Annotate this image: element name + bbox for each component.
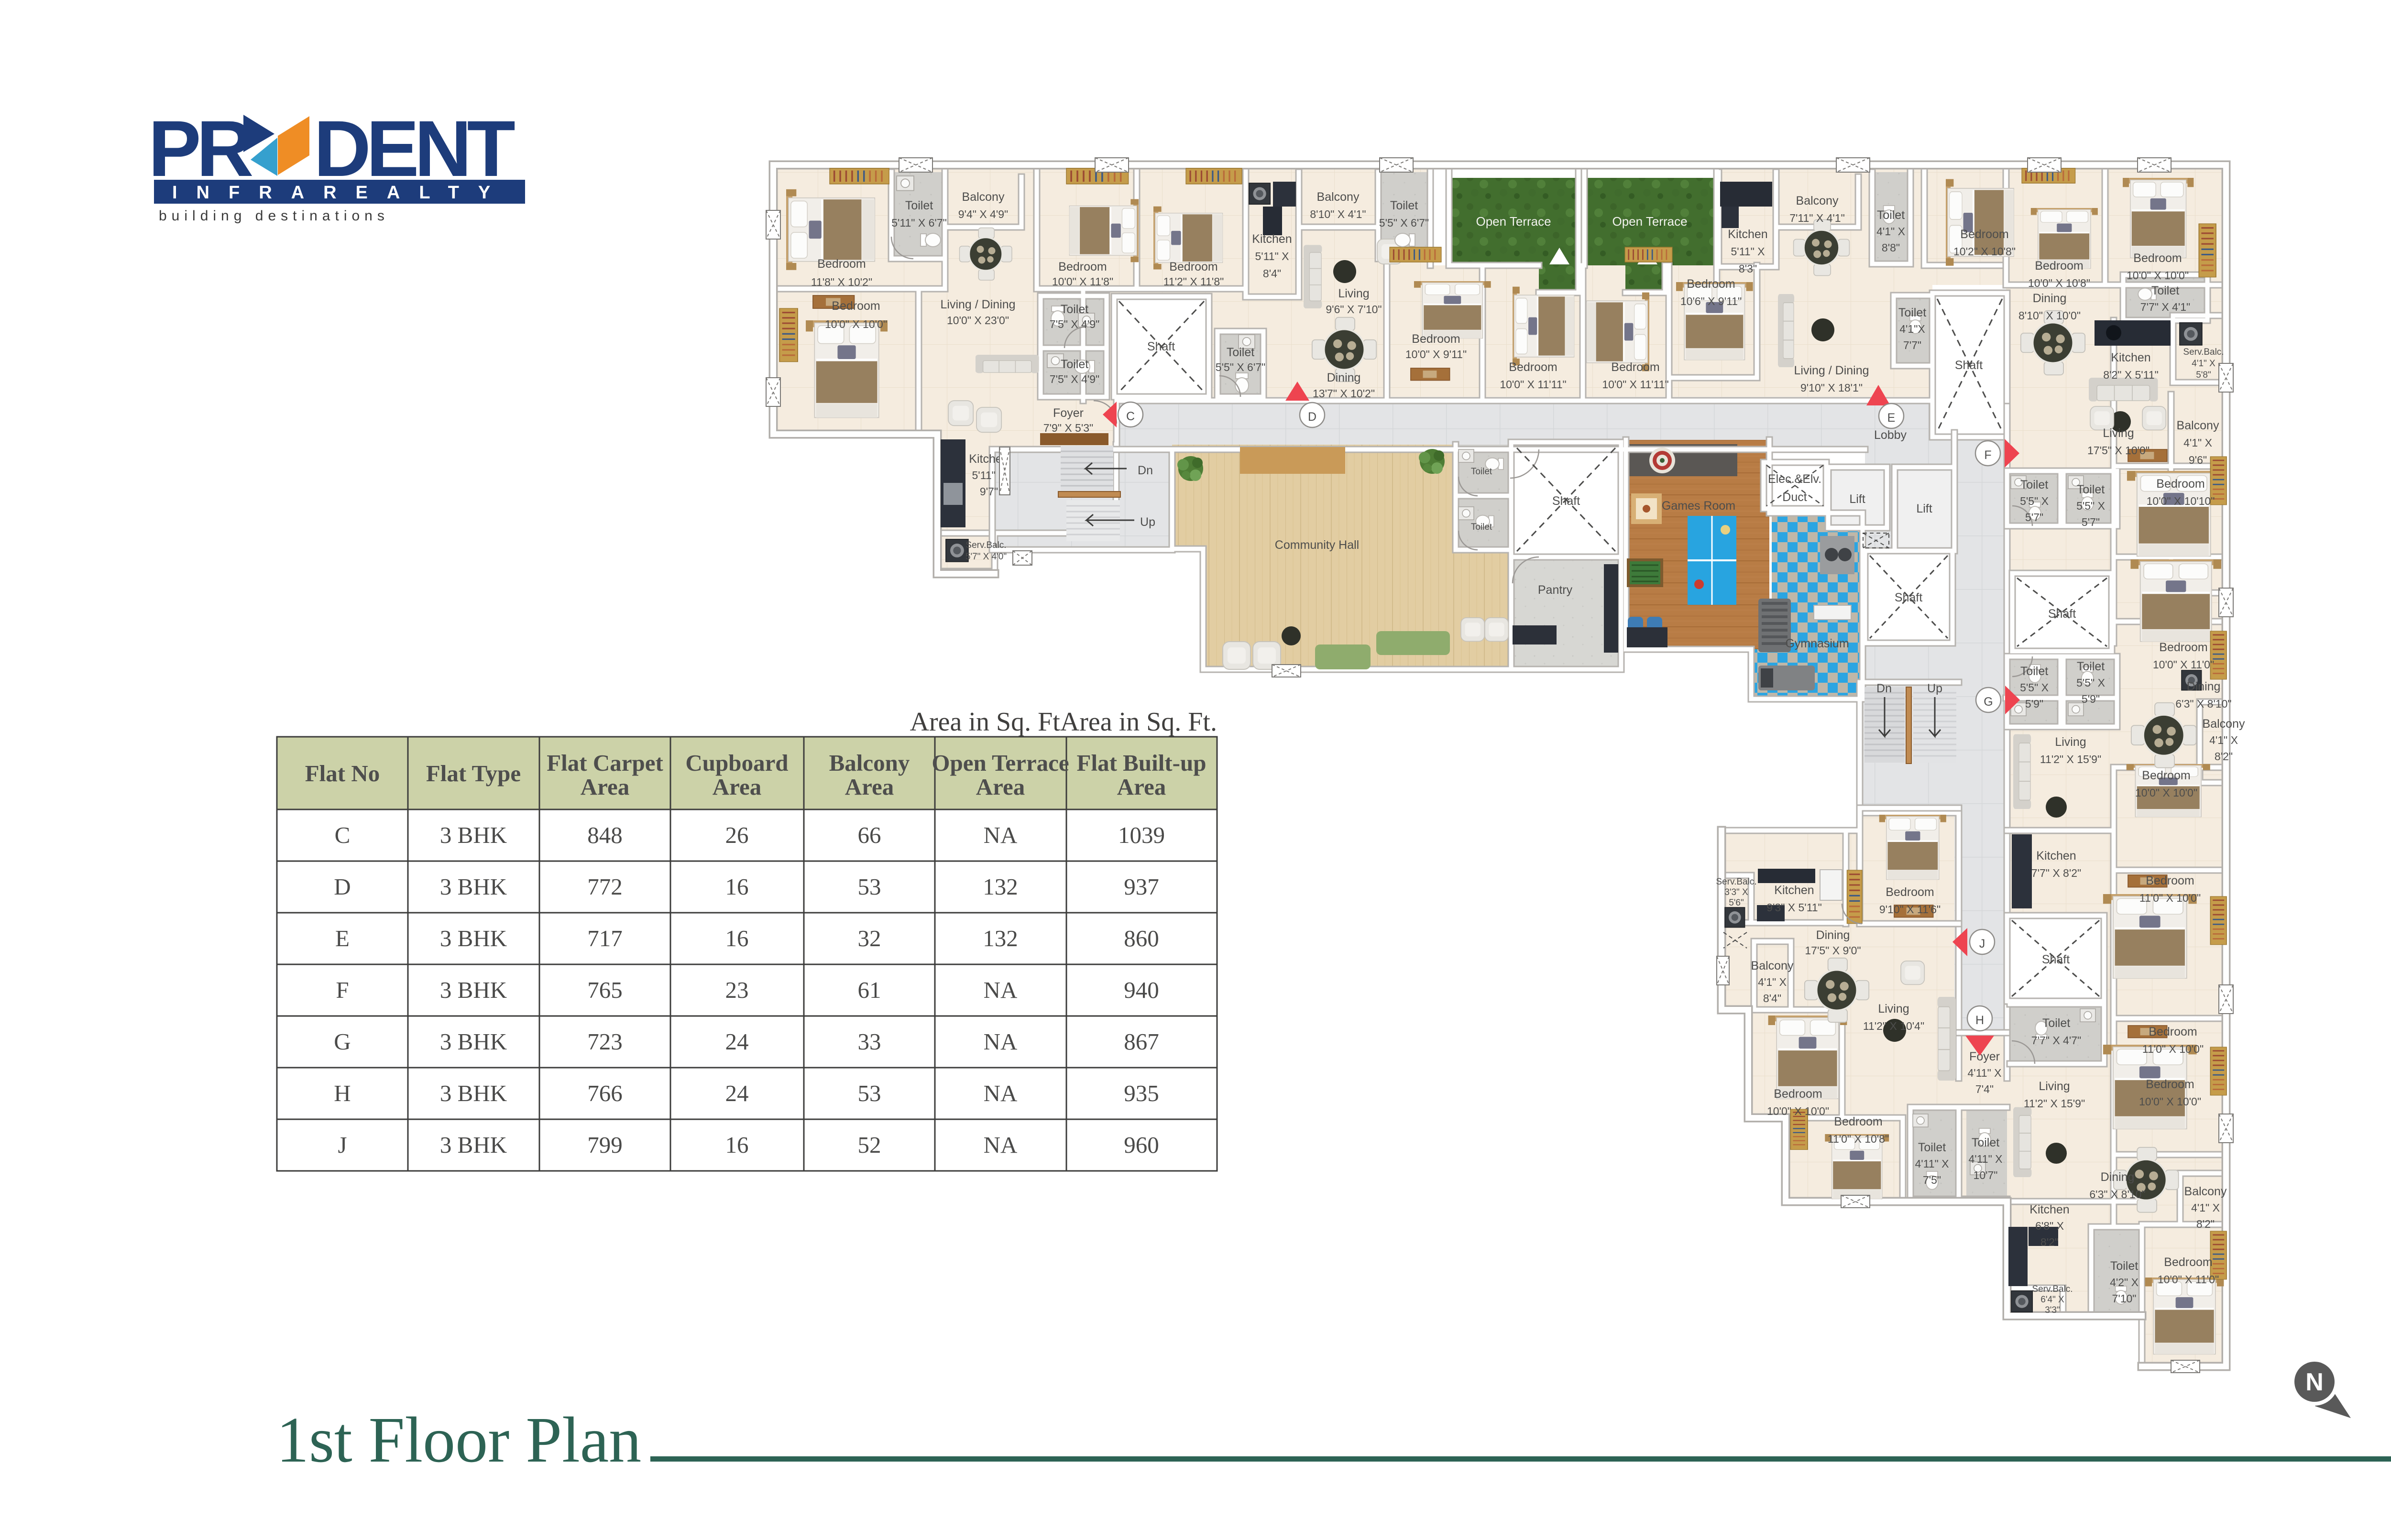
svg-text:NA: NA [984, 977, 1018, 1003]
svg-text:940: 940 [1124, 977, 1159, 1003]
svg-text:10'0" X 11'0": 10'0" X 11'0" [2153, 658, 2214, 671]
svg-text:32: 32 [858, 925, 881, 951]
svg-text:Dn: Dn [1138, 464, 1153, 477]
svg-text:Pantry: Pantry [1538, 583, 1573, 597]
svg-text:NA: NA [984, 1132, 1018, 1158]
svg-text:5'9": 5'9" [2025, 698, 2043, 710]
svg-text:Games Room: Games Room [1662, 499, 1735, 513]
svg-text:Toilet: Toilet [1061, 358, 1088, 371]
svg-text:24: 24 [725, 1028, 749, 1055]
svg-text:Living / Dining: Living / Dining [1794, 364, 1869, 377]
svg-text:Balcony: Balcony [1751, 959, 1794, 972]
svg-text:Toilet: Toilet [2151, 284, 2179, 297]
svg-text:Balcony: Balcony [1317, 190, 1360, 204]
svg-text:Toilet: Toilet [2020, 478, 2048, 491]
svg-text:D: D [1308, 410, 1316, 424]
svg-text:4'1" X: 4'1" X [2209, 734, 2238, 746]
svg-text:4'1" X: 4'1" X [2183, 437, 2212, 449]
svg-text:16: 16 [725, 1132, 749, 1158]
svg-text:848: 848 [587, 822, 623, 848]
svg-text:10'0" X 10'0": 10'0" X 10'0" [2135, 786, 2197, 799]
svg-text:10'2" X 10'8": 10'2" X 10'8" [1953, 245, 2016, 258]
svg-text:Open Terrace: Open Terrace [1612, 214, 1687, 229]
svg-text:11'0" X 10'0": 11'0" X 10'0" [2139, 892, 2201, 904]
svg-text:7'7" X 4'1": 7'7" X 4'1" [2140, 301, 2190, 313]
svg-text:Cupboard: Cupboard [685, 750, 788, 776]
svg-text:Bedroom: Bedroom [832, 299, 880, 313]
svg-text:8'8": 8'8" [1882, 241, 1900, 254]
svg-text:10'0" X 10'0": 10'0" X 10'0" [825, 318, 887, 330]
svg-text:860: 860 [1124, 925, 1159, 951]
svg-text:66: 66 [858, 822, 881, 848]
svg-text:5'7" X 4'0": 5'7" X 4'0" [965, 552, 1007, 562]
svg-text:53: 53 [858, 1080, 881, 1106]
svg-text:11'2" X 11'8": 11'2" X 11'8" [1163, 275, 1224, 288]
svg-text:17'5" X 10'0": 17'5" X 10'0" [2087, 444, 2150, 457]
svg-text:5'5" X: 5'5" X [2020, 495, 2049, 507]
svg-text:5'7": 5'7" [2025, 511, 2043, 524]
svg-text:9'10" X 18'1": 9'10" X 18'1" [1800, 382, 1863, 394]
svg-text:11'2" X 10'4": 11'2" X 10'4" [1863, 1020, 1924, 1032]
svg-text:10'0" X 11'8": 10'0" X 11'8" [1052, 275, 1113, 288]
svg-text:Balcony: Balcony [829, 750, 910, 776]
svg-text:Foyer: Foyer [1053, 406, 1084, 420]
svg-text:10'0" X 11'0": 10'0" X 11'0" [2158, 1273, 2219, 1286]
svg-text:D: D [334, 874, 351, 900]
svg-text:4'11" X: 4'11" X [1915, 1158, 1949, 1170]
svg-text:799: 799 [587, 1132, 623, 1158]
svg-text:11'2" X 15'9": 11'2" X 15'9" [2024, 1097, 2085, 1110]
svg-text:Toilet: Toilet [1227, 346, 1254, 359]
svg-text:Serv.Balc.: Serv.Balc. [1716, 877, 1756, 887]
svg-text:8'2": 8'2" [2040, 1236, 2059, 1248]
svg-text:Area: Area [1117, 774, 1166, 800]
svg-text:7'5" X 4'9": 7'5" X 4'9" [1050, 373, 1099, 385]
svg-text:24: 24 [725, 1080, 749, 1106]
svg-text:4'1" X: 4'1" X [2192, 359, 2216, 369]
svg-text:NA: NA [984, 1080, 1018, 1106]
svg-text:Bedroom: Bedroom [1412, 332, 1460, 346]
svg-text:Toilet: Toilet [1918, 1141, 1946, 1154]
svg-text:Bedroom: Bedroom [1687, 277, 1735, 291]
svg-text:Open Terrace: Open Terrace [932, 750, 1069, 776]
svg-text:16: 16 [725, 925, 749, 951]
svg-text:Toilet: Toilet [1471, 522, 1492, 532]
svg-text:Dining: Dining [2187, 680, 2221, 693]
svg-text:Open Terrace: Open Terrace [1476, 214, 1551, 229]
svg-text:Toilet: Toilet [1471, 467, 1492, 477]
svg-text:Bedroom: Bedroom [2159, 641, 2207, 654]
svg-text:61: 61 [858, 977, 881, 1003]
svg-text:10'6" X 9'11": 10'6" X 9'11" [1680, 295, 1742, 307]
svg-text:Bedroom: Bedroom [2156, 477, 2205, 491]
svg-text:Area: Area [713, 774, 762, 800]
svg-text:Dn: Dn [1876, 682, 1892, 695]
svg-text:Bedroom: Bedroom [1960, 228, 2008, 241]
svg-text:Duct: Duct [1782, 491, 1807, 504]
svg-text:E: E [335, 925, 350, 951]
svg-text:3 BHK: 3 BHK [440, 1132, 507, 1158]
svg-text:5'5" X 6'7": 5'5" X 6'7" [1216, 361, 1265, 373]
svg-text:10'7": 10'7" [1974, 1169, 1998, 1181]
svg-text:53: 53 [858, 874, 881, 900]
svg-text:132: 132 [983, 925, 1018, 951]
svg-text:F: F [336, 977, 349, 1003]
svg-text:Living / Dining: Living / Dining [940, 298, 1015, 311]
svg-text:Bedroom: Bedroom [1509, 360, 1557, 374]
svg-text:Bedroom: Bedroom [2133, 251, 2182, 265]
svg-text:11'8" X 10'2": 11'8" X 10'2" [811, 276, 872, 288]
svg-text:Living: Living [2103, 426, 2134, 440]
svg-text:1039: 1039 [1118, 822, 1165, 848]
svg-text:Living: Living [1338, 287, 1369, 300]
svg-text:10'0" X 10'0": 10'0" X 10'0" [2139, 1095, 2201, 1108]
svg-text:10'0" X 11'11": 10'0" X 11'11" [1602, 378, 1668, 391]
svg-text:Bedroom: Bedroom [2035, 259, 2083, 273]
svg-text:Balcony: Balcony [2184, 1185, 2227, 1198]
svg-text:Shaft: Shaft [2042, 953, 2070, 966]
svg-text:Toilet: Toilet [2042, 1016, 2070, 1030]
svg-text:Bedroom: Bedroom [2146, 874, 2194, 887]
svg-text:6'4" X: 6'4" X [2040, 1295, 2064, 1305]
svg-text:11'0" X 10'8": 11'0" X 10'8" [1828, 1133, 1889, 1145]
svg-text:8'4": 8'4" [1763, 992, 1781, 1005]
svg-text:Community Hall: Community Hall [1275, 538, 1359, 552]
svg-text:NA: NA [984, 1028, 1018, 1055]
svg-text:Area: Area [845, 774, 894, 800]
svg-text:Bedroom: Bedroom [1058, 260, 1107, 273]
svg-text:E: E [1887, 411, 1896, 425]
svg-text:5'11" X: 5'11" X [1731, 245, 1765, 258]
svg-text:7'7" X 4'7": 7'7" X 4'7" [2031, 1034, 2081, 1047]
svg-text:5'6": 5'6" [1729, 898, 1744, 908]
svg-text:16: 16 [725, 874, 749, 900]
svg-text:Toilet: Toilet [1898, 306, 1926, 319]
svg-text:H: H [334, 1080, 351, 1106]
svg-text:Area: Area [976, 774, 1025, 800]
svg-text:10'0" X 10'10": 10'0" X 10'10" [2147, 495, 2215, 507]
svg-text:8'3": 8'3" [1739, 262, 1757, 275]
svg-text:Up: Up [1927, 682, 1942, 695]
svg-text:7'9" X 5'3": 7'9" X 5'3" [1043, 422, 1093, 434]
svg-text:Kitchen: Kitchen [1728, 228, 1767, 241]
svg-text:Flat Carpet: Flat Carpet [547, 750, 663, 776]
svg-text:Lift: Lift [1849, 492, 1865, 506]
svg-text:4'11" X: 4'11" X [1968, 1067, 2002, 1079]
svg-text:Bedroom: Bedroom [1169, 260, 1217, 273]
svg-text:Toilet: Toilet [1390, 199, 1418, 212]
svg-text:Kitchen: Kitchen [2036, 849, 2076, 863]
svg-text:5'9": 5'9" [2082, 693, 2100, 705]
svg-text:9'6" X 7'10": 9'6" X 7'10" [1326, 303, 1382, 316]
svg-text:5'11" X: 5'11" X [1255, 250, 1289, 262]
svg-text:723: 723 [587, 1028, 623, 1055]
svg-text:Toilet: Toilet [1061, 303, 1088, 316]
svg-text:Balcony: Balcony [2203, 717, 2245, 731]
svg-text:Area: Area [581, 774, 630, 800]
svg-text:5'7": 5'7" [2082, 516, 2100, 528]
svg-text:Serv.Balc.: Serv.Balc. [2183, 347, 2224, 357]
svg-text:Toilet: Toilet [2077, 483, 2105, 496]
svg-text:Gymnasium: Gymnasium [1785, 637, 1849, 650]
svg-text:Bedroom: Bedroom [1834, 1115, 1882, 1128]
svg-text:772: 772 [587, 874, 623, 900]
svg-text:11'0" X 10'0": 11'0" X 10'0" [2142, 1043, 2204, 1055]
svg-text:C: C [335, 822, 351, 848]
svg-text:Kitchen: Kitchen [2111, 351, 2150, 364]
svg-text:11'2" X 15'9": 11'2" X 15'9" [2040, 753, 2101, 765]
svg-text:9'7": 9'7" [980, 485, 998, 498]
svg-text:Living: Living [1878, 1002, 1909, 1016]
svg-text:Flat Built-up: Flat Built-up [1077, 750, 1206, 776]
svg-text:Bedroom: Bedroom [2149, 1025, 2197, 1038]
svg-text:8'2": 8'2" [2215, 750, 2233, 763]
svg-text:7'7" X 8'2": 7'7" X 8'2" [2031, 867, 2081, 879]
svg-text:935: 935 [1124, 1080, 1159, 1106]
svg-text:Toilet: Toilet [1877, 208, 1905, 222]
svg-text:Up: Up [1140, 515, 1155, 529]
svg-text:4'1" X: 4'1" X [2191, 1201, 2220, 1214]
svg-text:H: H [1975, 1014, 1984, 1027]
svg-text:7'10": 7'10" [2112, 1292, 2137, 1305]
svg-text:3 BHK: 3 BHK [440, 874, 507, 900]
svg-text:J: J [338, 1132, 347, 1158]
svg-text:867: 867 [1124, 1028, 1159, 1055]
svg-text:937: 937 [1124, 874, 1159, 900]
svg-text:G: G [1984, 695, 1993, 709]
svg-text:9'10" X 11'6": 9'10" X 11'6" [1879, 903, 1941, 916]
svg-text:Bedroom: Bedroom [1611, 360, 1659, 374]
svg-text:1st Floor Plan: 1st Floor Plan [276, 1404, 641, 1476]
svg-text:Foyer: Foyer [1969, 1050, 2000, 1063]
svg-text:6'8" X: 6'8" X [2035, 1220, 2064, 1232]
svg-text:13'7" X 10'2": 13'7" X 10'2" [1313, 387, 1375, 400]
svg-text:3 BHK: 3 BHK [440, 822, 507, 848]
svg-text:Lift: Lift [1916, 502, 1932, 515]
svg-text:3 BHK: 3 BHK [440, 1080, 507, 1106]
svg-text:717: 717 [587, 925, 623, 951]
svg-text:Toilet: Toilet [2020, 665, 2048, 678]
svg-text:9'4" X 4'9": 9'4" X 4'9" [958, 208, 1008, 220]
svg-text:Bedroom: Bedroom [1774, 1087, 1822, 1101]
svg-text:6'3" X 8'10": 6'3" X 8'10" [2175, 698, 2231, 710]
svg-text:5'5" X: 5'5" X [2076, 500, 2105, 512]
svg-text:Living: Living [2039, 1080, 2070, 1093]
svg-text:5'11" X 6'7": 5'11" X 6'7" [891, 217, 946, 229]
svg-text:Dining: Dining [2033, 292, 2067, 305]
svg-text:F: F [1984, 448, 1991, 462]
svg-text:10'0" X 11'11": 10'0" X 11'11" [1500, 378, 1566, 391]
svg-text:7'4": 7'4" [1975, 1083, 1994, 1095]
svg-text:Kitchen: Kitchen [1252, 232, 1292, 246]
svg-text:3 BHK: 3 BHK [440, 1028, 507, 1055]
svg-text:10'0" X 10'0": 10'0" X 10'0" [1767, 1105, 1829, 1117]
svg-text:Balcony: Balcony [2177, 419, 2219, 432]
svg-text:8'2": 8'2" [2196, 1218, 2215, 1230]
svg-text:Elec.&Elv.: Elec.&Elv. [1768, 472, 1821, 486]
svg-text:3'3": 3'3" [2045, 1305, 2060, 1315]
svg-text:6'3" X 8'10": 6'3" X 8'10" [2089, 1188, 2145, 1201]
svg-text:5'5" X: 5'5" X [2020, 681, 2049, 694]
svg-text:Bedroom: Bedroom [2142, 769, 2190, 782]
svg-text:building destinations: building destinations [159, 208, 389, 224]
svg-text:23: 23 [725, 977, 749, 1003]
svg-text:4'1" X: 4'1" X [1758, 976, 1787, 988]
svg-text:Serv.Balc.: Serv.Balc. [965, 540, 1006, 550]
svg-text:Living: Living [2055, 735, 2086, 749]
svg-text:3 BHK: 3 BHK [440, 977, 507, 1003]
svg-text:33: 33 [858, 1028, 881, 1055]
svg-text:Toilet: Toilet [1972, 1136, 1999, 1149]
svg-text:Bedroom: Bedroom [2164, 1256, 2212, 1269]
svg-text:Serv.Balc.: Serv.Balc. [2032, 1284, 2073, 1294]
svg-text:Kitchen: Kitchen [1774, 884, 1814, 897]
svg-text:Shaft: Shaft [1552, 494, 1580, 508]
svg-text:Shaft: Shaft [1147, 340, 1175, 353]
svg-text:Flat No: Flat No [305, 760, 380, 786]
svg-text:5'8": 5'8" [2196, 370, 2211, 380]
svg-text:7'11" X 4'1": 7'11" X 4'1" [1789, 212, 1844, 224]
svg-text:Toilet: Toilet [2077, 660, 2105, 673]
svg-text:Shaft: Shaft [1895, 591, 1922, 604]
svg-text:4'2" X: 4'2" X [2110, 1276, 2139, 1289]
svg-text:7'5": 7'5" [1923, 1174, 1941, 1186]
svg-text:Dining: Dining [1816, 928, 1850, 942]
svg-text:INFRAREALTY: INFRAREALTY [172, 183, 509, 203]
svg-text:Bedroom: Bedroom [817, 257, 866, 271]
svg-text:9'6": 9'6" [2189, 454, 2207, 466]
svg-text:Dining: Dining [1327, 371, 1361, 384]
svg-text:7'5" X 4'9": 7'5" X 4'9" [1050, 318, 1099, 330]
svg-text:960: 960 [1124, 1132, 1159, 1158]
svg-text:4'1"X: 4'1"X [1899, 323, 1925, 335]
svg-text:10'0" X 10'8": 10'0" X 10'8" [2028, 277, 2090, 289]
svg-text:Lobby: Lobby [1874, 428, 1907, 442]
svg-text:5'5" X 6'7": 5'5" X 6'7" [1379, 217, 1429, 229]
svg-text:8'2" X 5'11": 8'2" X 5'11" [2103, 369, 2158, 381]
svg-text:10'0" X 9'11": 10'0" X 9'11" [1405, 348, 1467, 360]
svg-text:3'3" X: 3'3" X [1724, 887, 1748, 897]
svg-text:Balcony: Balcony [1796, 194, 1839, 208]
svg-text:766: 766 [587, 1080, 623, 1106]
svg-text:10'0" X 23'0": 10'0" X 23'0" [947, 314, 1009, 327]
svg-text:Area in Sq. FtArea in Sq. Ft.: Area in Sq. FtArea in Sq. Ft. [910, 707, 1217, 737]
svg-text:Shaft: Shaft [2048, 607, 2076, 621]
svg-text:26: 26 [725, 822, 749, 848]
svg-text:3 BHK: 3 BHK [440, 925, 507, 951]
svg-text:Bedroom: Bedroom [1886, 885, 1934, 899]
svg-text:Flat Type: Flat Type [426, 760, 521, 786]
svg-text:52: 52 [858, 1132, 881, 1158]
svg-text:9'3" X 5'11": 9'3" X 5'11" [1766, 901, 1821, 914]
svg-text:8'10" X 10'0": 8'10" X 10'0" [2018, 309, 2081, 322]
svg-text:132: 132 [983, 874, 1018, 900]
svg-text:10'0" X 10'0": 10'0" X 10'0" [2127, 269, 2189, 282]
svg-text:N: N [2305, 1368, 2324, 1396]
svg-text:Toilet: Toilet [905, 199, 933, 212]
svg-text:G: G [334, 1028, 351, 1055]
svg-text:17'5" X 9'0": 17'5" X 9'0" [1805, 944, 1861, 957]
svg-text:7'7": 7'7" [1903, 339, 1921, 351]
svg-text:8'4": 8'4" [1263, 267, 1281, 280]
svg-text:Balcony: Balcony [962, 190, 1005, 204]
svg-text:Bedroom: Bedroom [2146, 1078, 2194, 1091]
svg-text:Toilet: Toilet [2110, 1259, 2138, 1273]
svg-text:J: J [1979, 937, 1985, 950]
svg-text:765: 765 [587, 977, 623, 1003]
svg-text:NA: NA [984, 822, 1018, 848]
svg-text:5'5" X: 5'5" X [2076, 677, 2105, 689]
svg-text:8'10" X 4'1": 8'10" X 4'1" [1310, 208, 1366, 220]
svg-text:4'1" X: 4'1" X [1876, 225, 1905, 238]
svg-text:Kitchen: Kitchen [2029, 1203, 2069, 1216]
svg-text:Dining: Dining [2101, 1170, 2135, 1184]
svg-text:C: C [1126, 410, 1135, 423]
svg-text:4'11" X: 4'11" X [1969, 1153, 2003, 1165]
svg-text:Shaft: Shaft [1955, 359, 1983, 372]
